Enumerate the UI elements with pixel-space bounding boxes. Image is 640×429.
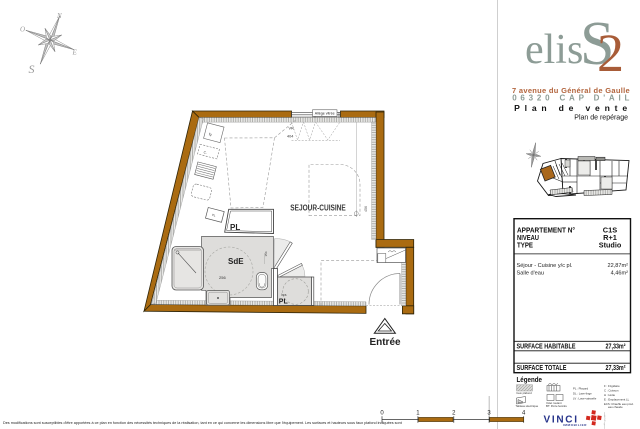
- svg-text:Salle d'eau: Salle d'eau: [517, 271, 545, 277]
- svg-text:4,46m²: 4,46m²: [611, 271, 629, 277]
- svg-text:Plan de repérage: Plan de repérage: [574, 114, 628, 121]
- svg-text:22,87m²: 22,87m²: [607, 263, 628, 269]
- svg-text:DL : Lave-linge: DL : Lave-linge: [573, 392, 592, 396]
- svg-text:S: S: [29, 62, 35, 76]
- svg-text:PL: PL: [230, 223, 240, 232]
- svg-text:06320 CAP D'AIL: 06320 CAP D'AIL: [512, 94, 633, 103]
- svg-text:E : Emplacement LL: E : Emplacement LL: [604, 398, 630, 402]
- svg-text:Studio: Studio: [599, 240, 622, 249]
- svg-text:2: 2: [597, 23, 624, 83]
- svg-text:VR: VR: [289, 127, 295, 131]
- svg-text:SdE: SdE: [228, 257, 244, 266]
- svg-text:Légende: Légende: [517, 375, 543, 384]
- svg-text:IMMOBILIER: IMMOBILIER: [563, 423, 587, 427]
- svg-text:Des modifications sont suscept: Des modifications sont susceptibles d'êt…: [3, 421, 403, 425]
- svg-text:faux plafond: faux plafond: [517, 391, 533, 395]
- svg-text:BT: Porte fenêtre: BT: Porte fenêtre: [546, 404, 567, 408]
- svg-text:Allège vitrée: Allège vitrée: [315, 112, 335, 116]
- svg-text:F : Frigidaire: F : Frigidaire: [604, 384, 620, 388]
- svg-text:Entrée: Entrée: [369, 337, 401, 348]
- svg-text:LV : Lave-vaisselle: LV : Lave-vaisselle: [573, 397, 597, 401]
- svg-text:256: 256: [219, 275, 226, 280]
- svg-text:H : Hotte: H : Hotte: [604, 393, 615, 397]
- svg-text:PL: PL: [279, 299, 289, 306]
- svg-text:SEJOUR-CUISINE: SEJOUR-CUISINE: [290, 203, 346, 212]
- svg-text:eau chaude: eau chaude: [608, 405, 623, 409]
- svg-text:456: 456: [364, 206, 368, 212]
- svg-text:SURFACE TOTALE: SURFACE TOTALE: [517, 363, 567, 372]
- svg-text:Plan de vente: Plan de vente: [514, 103, 632, 113]
- svg-text:elis: elis: [525, 27, 583, 73]
- svg-text:27,33m²: 27,33m²: [606, 365, 627, 372]
- svg-text:certifié NF logement: certifié NF logement: [603, 412, 606, 429]
- svg-text:27,33m²: 27,33m²: [606, 344, 627, 351]
- svg-text:C : Cuisson: C : Cuisson: [604, 389, 619, 393]
- svg-text:Tableau électrique: Tableau électrique: [516, 404, 539, 408]
- svg-text:E: E: [72, 49, 78, 57]
- svg-text:N: N: [56, 12, 62, 20]
- svg-text:404: 404: [287, 135, 293, 139]
- svg-text:bcs: bcs: [282, 293, 287, 297]
- svg-text:SURFACE HABITABLE: SURFACE HABITABLE: [517, 342, 576, 351]
- svg-text:PL : Placard: PL : Placard: [573, 387, 589, 391]
- svg-text:O: O: [20, 26, 25, 34]
- svg-text:Séjour - Cuisine y/c pl.: Séjour - Cuisine y/c pl.: [517, 263, 573, 269]
- svg-text:TYPE: TYPE: [517, 240, 533, 249]
